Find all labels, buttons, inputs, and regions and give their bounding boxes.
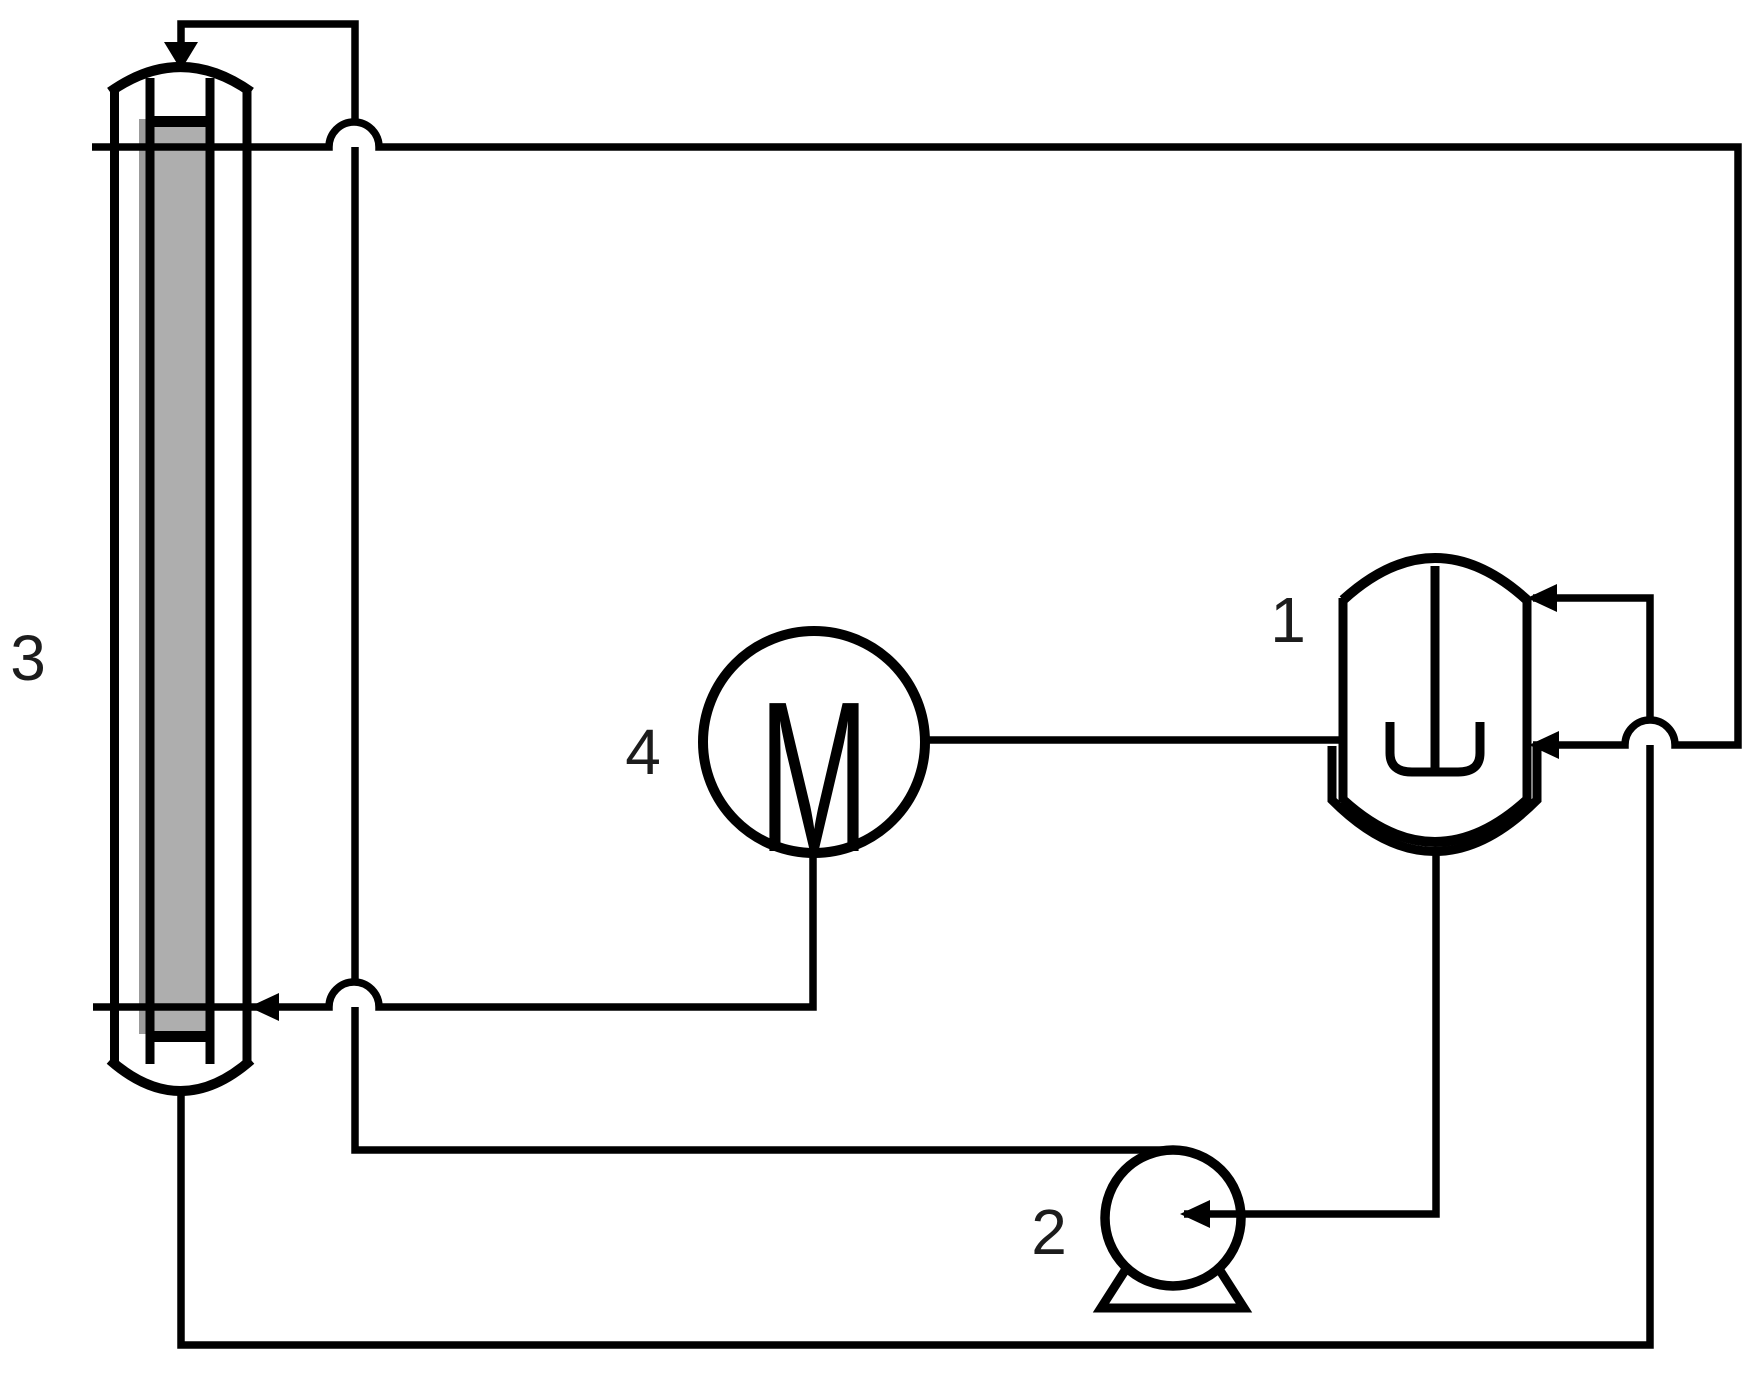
stirred-reactor [1332,558,1537,852]
membrane-bottom-cap [146,1031,215,1042]
column-label: 3 [10,622,46,694]
pipe-reactor-drain-to-pump [1184,848,1436,1214]
membrane-column [110,67,251,1091]
pump-label: 2 [1031,1196,1067,1268]
process-flow-diagram-page: M [0,0,1764,1386]
arrowhead-column-shell-inlet [249,993,279,1021]
membrane-top-cap [146,116,215,127]
membrane-rod [150,127,210,1034]
process-flow-diagram: M [0,0,1764,1386]
motor-label: 4 [625,716,661,788]
pipe-column-shell-to-reactor [92,122,1738,745]
column-top-dome [110,67,251,92]
piping [92,24,1738,1345]
pump-body-circle [1105,1150,1241,1286]
reactor-label: 1 [1270,584,1306,656]
pump [1101,1150,1244,1308]
pipe-pump-to-column-top [181,24,1171,1150]
